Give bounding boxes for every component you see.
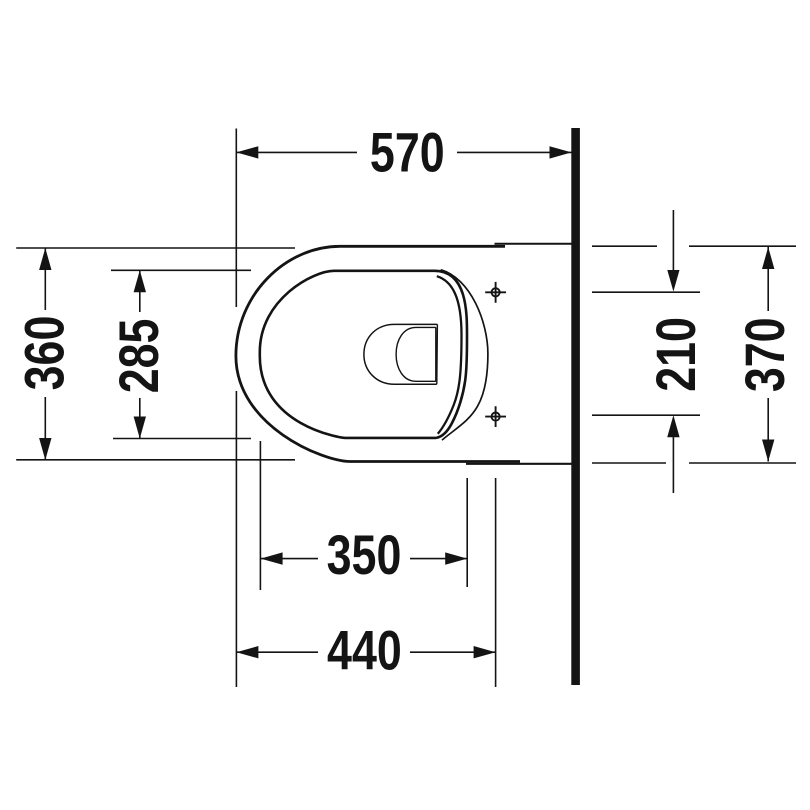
svg-text:370: 370 bbox=[733, 317, 796, 392]
svg-text:285: 285 bbox=[107, 319, 170, 394]
svg-text:440: 440 bbox=[327, 619, 402, 682]
svg-text:570: 570 bbox=[370, 121, 445, 184]
svg-text:210: 210 bbox=[644, 317, 707, 392]
svg-text:350: 350 bbox=[327, 523, 402, 586]
svg-text:360: 360 bbox=[13, 316, 76, 391]
